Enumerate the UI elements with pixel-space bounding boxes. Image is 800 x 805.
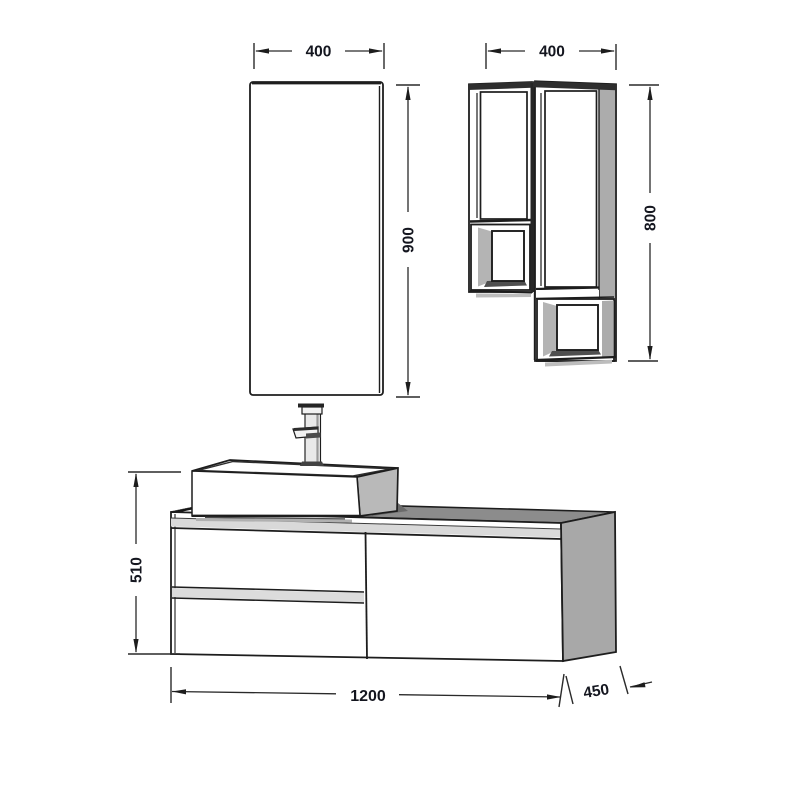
svg-text:900: 900: [401, 227, 418, 253]
svg-text:400: 400: [306, 44, 332, 61]
svg-text:510: 510: [129, 557, 146, 583]
svg-text:800: 800: [643, 205, 660, 231]
svg-text:1200: 1200: [350, 688, 386, 705]
svg-text:450: 450: [582, 681, 610, 702]
svg-text:400: 400: [539, 44, 565, 61]
